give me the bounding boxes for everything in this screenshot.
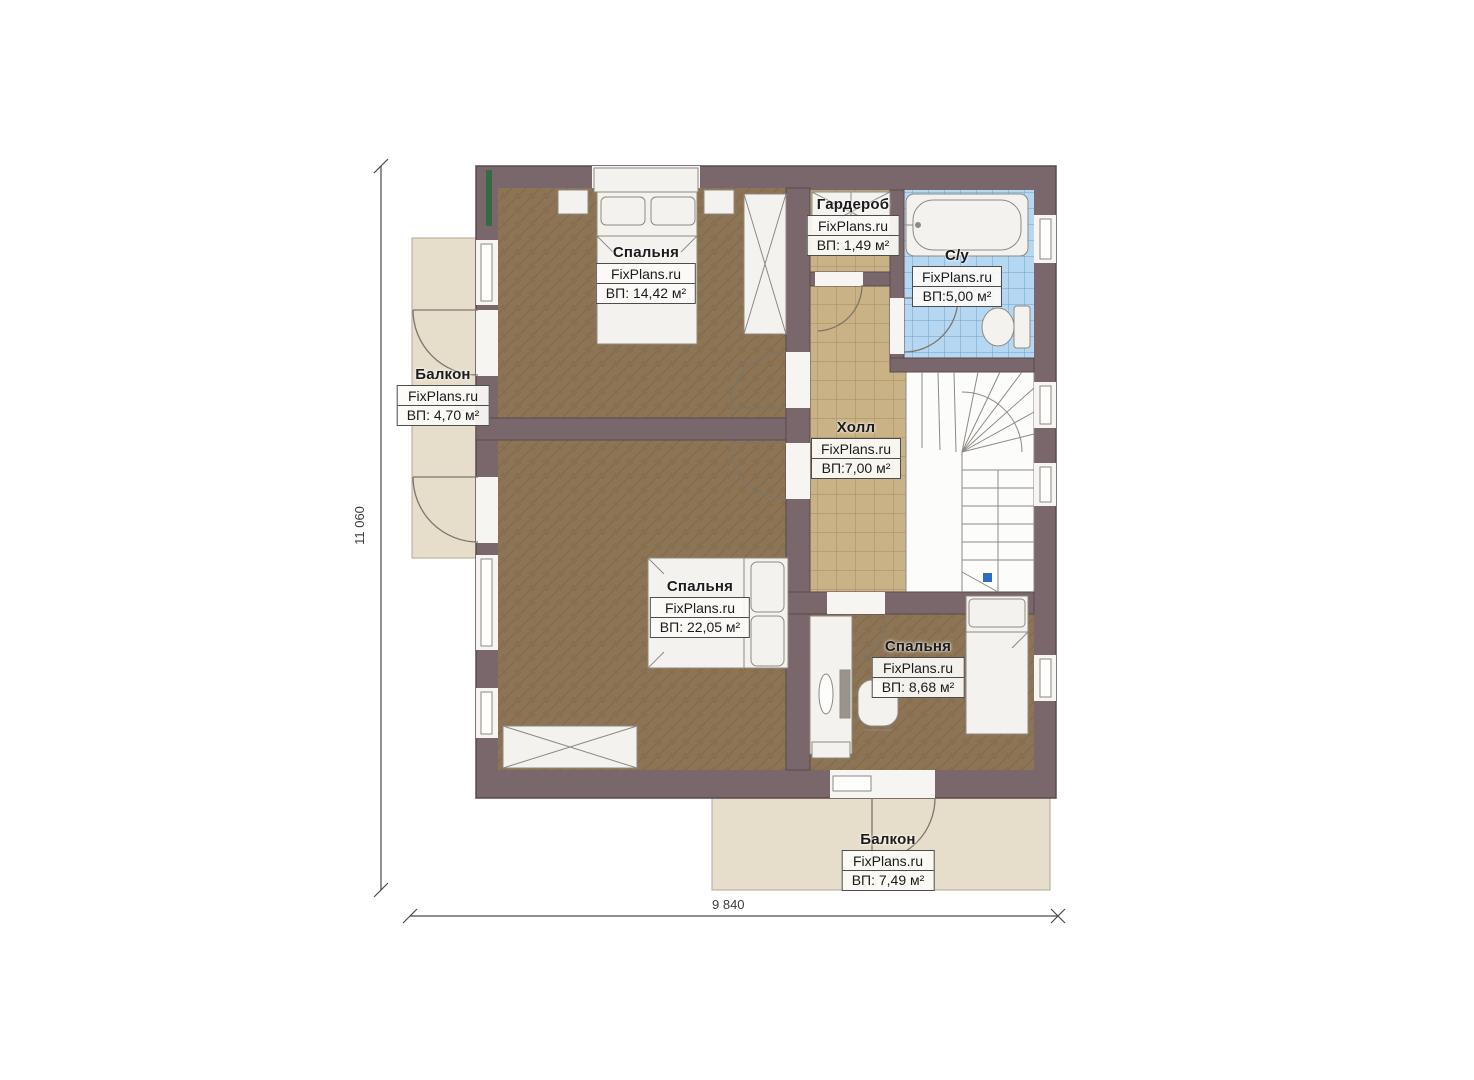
brand-watermark: FixPlans.ru <box>873 658 964 678</box>
low-cabinet <box>812 742 850 758</box>
wardrobe-cabinet-master <box>503 726 637 768</box>
wardrobe-cabinet-top <box>744 194 786 334</box>
room-area: ВП:7,00 м² <box>812 459 900 478</box>
window-bottom-bedroom-small <box>833 776 871 791</box>
room-info-box: FixPlans.ru ВП: 8,68 м² <box>872 657 965 698</box>
floor-plan-drawing <box>0 0 1474 1080</box>
brand-watermark: FixPlans.ru <box>812 439 900 459</box>
bed-single <box>966 596 1028 734</box>
room-area: ВП: 1,49 м² <box>808 236 899 255</box>
room-area: ВП:5,00 м² <box>913 287 1001 306</box>
room-info-box: FixPlans.ru ВП:7,00 м² <box>811 438 901 479</box>
room-label-balcony-left: Балкон FixPlans.ru ВП: 4,70 м² <box>397 366 490 426</box>
room-name: Гардероб <box>807 196 900 213</box>
room-name: Балкон <box>397 366 490 383</box>
brand-watermark: FixPlans.ru <box>913 267 1001 287</box>
nightstand-left <box>558 190 588 214</box>
brand-watermark: FixPlans.ru <box>808 216 899 236</box>
brand-watermark: FixPlans.ru <box>651 598 749 618</box>
room-info-box: FixPlans.ru ВП: 22,05 м² <box>650 597 750 638</box>
toilet <box>982 306 1030 348</box>
room-name: Спальня <box>872 638 965 655</box>
window-right-stairs-2 <box>1034 463 1056 506</box>
window-right-bathroom <box>1034 215 1056 263</box>
window-left-bedroom-top <box>476 240 498 305</box>
dimension-width-label: 9 840 <box>712 897 745 912</box>
room-label-bathroom: С/у FixPlans.ru ВП:5,00 м² <box>912 247 1002 307</box>
room-area: ВП: 4,70 м² <box>398 406 489 425</box>
room-label-hall: Холл FixPlans.ru ВП:7,00 м² <box>811 419 901 479</box>
room-info-box: FixPlans.ru ВП:5,00 м² <box>912 266 1002 307</box>
room-info-box: FixPlans.ru ВП: 4,70 м² <box>397 385 490 426</box>
room-name: Балкон <box>842 831 935 848</box>
brand-watermark: FixPlans.ru <box>398 386 489 406</box>
room-name: Холл <box>811 419 901 436</box>
room-label-wardrobe: Гардероб FixPlans.ru ВП: 1,49 м² <box>807 196 900 256</box>
room-area: ВП: 22,05 м² <box>651 618 749 637</box>
room-info-box: FixPlans.ru ВП: 7,49 м² <box>842 850 935 891</box>
room-label-bedroom-master: Спальня FixPlans.ru ВП: 22,05 м² <box>650 578 750 638</box>
window-right-bedroom-small <box>1034 655 1056 701</box>
window-left-bedroom-master-1 <box>476 555 498 650</box>
room-info-box: FixPlans.ru ВП: 1,49 м² <box>807 215 900 256</box>
room-area: ВП: 8,68 м² <box>873 678 964 697</box>
dimension-height-label: 11 060 <box>352 506 367 545</box>
window-left-bedroom-master-2 <box>476 688 498 738</box>
desk <box>810 616 852 754</box>
floor-plan-canvas: Спальня FixPlans.ru ВП: 14,42 м² Гардеро… <box>0 0 1474 1080</box>
window-right-stairs-1 <box>1034 382 1056 428</box>
room-label-bedroom-small: Спальня FixPlans.ru ВП: 8,68 м² <box>872 638 965 698</box>
green-accent <box>486 170 492 226</box>
brand-watermark: FixPlans.ru <box>597 264 695 284</box>
room-info-box: FixPlans.ru ВП: 14,42 м² <box>596 263 696 304</box>
room-name: С/у <box>912 247 1002 264</box>
nightstand-right <box>704 190 734 214</box>
room-name: Спальня <box>650 578 750 595</box>
brand-watermark: FixPlans.ru <box>843 851 934 871</box>
room-area: ВП: 7,49 м² <box>843 871 934 890</box>
room-label-bedroom-top: Спальня FixPlans.ru ВП: 14,42 м² <box>596 244 696 304</box>
room-label-balcony-bottom: Балкон FixPlans.ru ВП: 7,49 м² <box>842 831 935 891</box>
room-name: Спальня <box>596 244 696 261</box>
room-area: ВП: 14,42 м² <box>597 284 695 303</box>
stairs-marker <box>983 573 992 582</box>
